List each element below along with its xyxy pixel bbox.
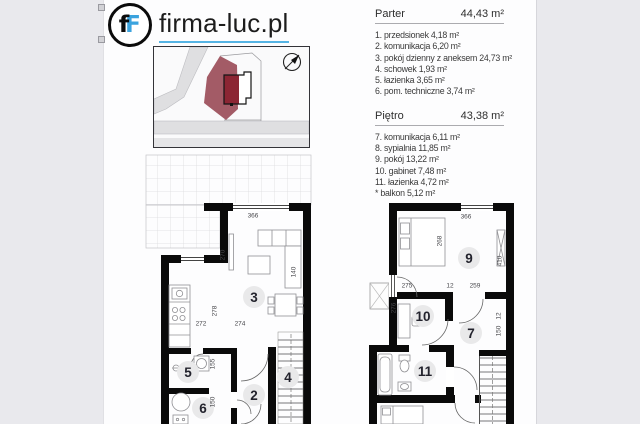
room-list-item: 6. pom. techniczne 3,74 m² [375, 86, 504, 97]
compass-icon [284, 54, 301, 71]
section-title: Piętro [375, 110, 404, 122]
dimension-label: 150 [496, 326, 503, 337]
site-plan-thumbnail [153, 46, 310, 148]
floor-plan-parter: 35624366270272274278140155150 [144, 152, 316, 424]
building-entry-mark [230, 103, 233, 106]
legend-section-parter: Parter 44,43 m² 1. przedsionek 4,18 m²2.… [375, 8, 504, 98]
logo-text: firma-luc.pl [159, 8, 289, 43]
dimension-label: 268 [437, 236, 444, 247]
road-diagonal [154, 47, 208, 114]
road-horizontal [154, 121, 309, 134]
dimension-label: 140 [291, 267, 298, 278]
room-list-item: 4. schowek 1,93 m² [375, 64, 504, 75]
room-list-item: 11. łazienka 4,72 m² [375, 177, 504, 188]
room-number: 7 [460, 322, 482, 344]
dimension-label: 274 [235, 321, 246, 328]
section-title: Parter [375, 8, 405, 20]
dimension-label: 12 [496, 312, 503, 319]
room-list-item: 10. gabinet 7,48 m² [375, 166, 504, 177]
dimension-label: 150 [210, 397, 217, 408]
dimension-label: 272 [196, 321, 207, 328]
edge-handle-top [98, 4, 105, 11]
road-strip [154, 138, 309, 147]
room-list-item: 7. komunikacja 6,11 m² [375, 132, 504, 143]
dimension-label: 12 [446, 283, 453, 290]
dimension-label: 278 [212, 306, 219, 317]
room-list-item: * balkon 5,12 m² [375, 188, 504, 199]
building-red [224, 75, 239, 104]
dimension-label: 410 [497, 256, 504, 267]
dimension-label: 155 [210, 359, 217, 370]
room-list-item: 9. pokój 13,22 m² [375, 154, 504, 165]
logo-ff-icon: f F [108, 3, 152, 47]
floorplan-page: { "colors": { "background": "#E9E9ED", "… [0, 0, 640, 424]
room-number: 11 [414, 360, 436, 382]
dimension-label: 259 [470, 283, 481, 290]
room-number: 5 [177, 361, 199, 383]
room-number: 10 [412, 305, 434, 327]
logo: f F firma-luc.pl [108, 3, 289, 47]
area-legend: Parter 44,43 m² 1. przedsionek 4,18 m²2.… [375, 8, 504, 200]
logo-letter-black: f [119, 14, 130, 37]
dimension-label: 275 [402, 283, 413, 290]
pietro-labels: 9107113662684102751225927612150 [369, 200, 521, 424]
section-header: Parter 44,43 m² [375, 8, 504, 24]
room-list-item: 5. łazienka 3,65 m² [375, 75, 504, 86]
room-number: 4 [277, 366, 299, 388]
dimension-label: 276 [391, 303, 398, 314]
parter-labels: 35624366270272274278140155150 [144, 152, 316, 424]
section-header: Piętro 43,38 m² [375, 110, 504, 126]
room-list: 1. przedsionek 4,18 m²2. komunikacja 6,2… [375, 30, 504, 98]
room-list-item: 8. sypialnia 11,85 m² [375, 143, 504, 154]
legend-section-pietro: Piętro 43,38 m² 7. komunikacja 6,11 m²8.… [375, 110, 504, 200]
section-area: 44,43 m² [461, 8, 504, 20]
room-number: 9 [458, 247, 480, 269]
room-list-item: 1. przedsionek 4,18 m² [375, 30, 504, 41]
section-area: 43,38 m² [461, 110, 504, 122]
room-list-item: 2. komunikacja 6,20 m² [375, 41, 504, 52]
room-number: 3 [243, 286, 265, 308]
floor-plan-pietro: 9107113662684102751225927612150 [369, 200, 521, 424]
brochure-page: f F firma-luc.pl [103, 0, 537, 424]
edge-handle-bottom [98, 36, 105, 43]
dimension-label: 366 [248, 213, 259, 220]
room-list-item: 3. pokój dzienny z aneksem 24,73 m² [375, 53, 504, 64]
room-number: 2 [243, 384, 265, 406]
room-list: 7. komunikacja 6,11 m²8. sypialnia 11,85… [375, 132, 504, 200]
dimension-label: 270 [220, 250, 227, 261]
dimension-label: 366 [461, 214, 472, 221]
site-plan-drawing [154, 47, 309, 147]
